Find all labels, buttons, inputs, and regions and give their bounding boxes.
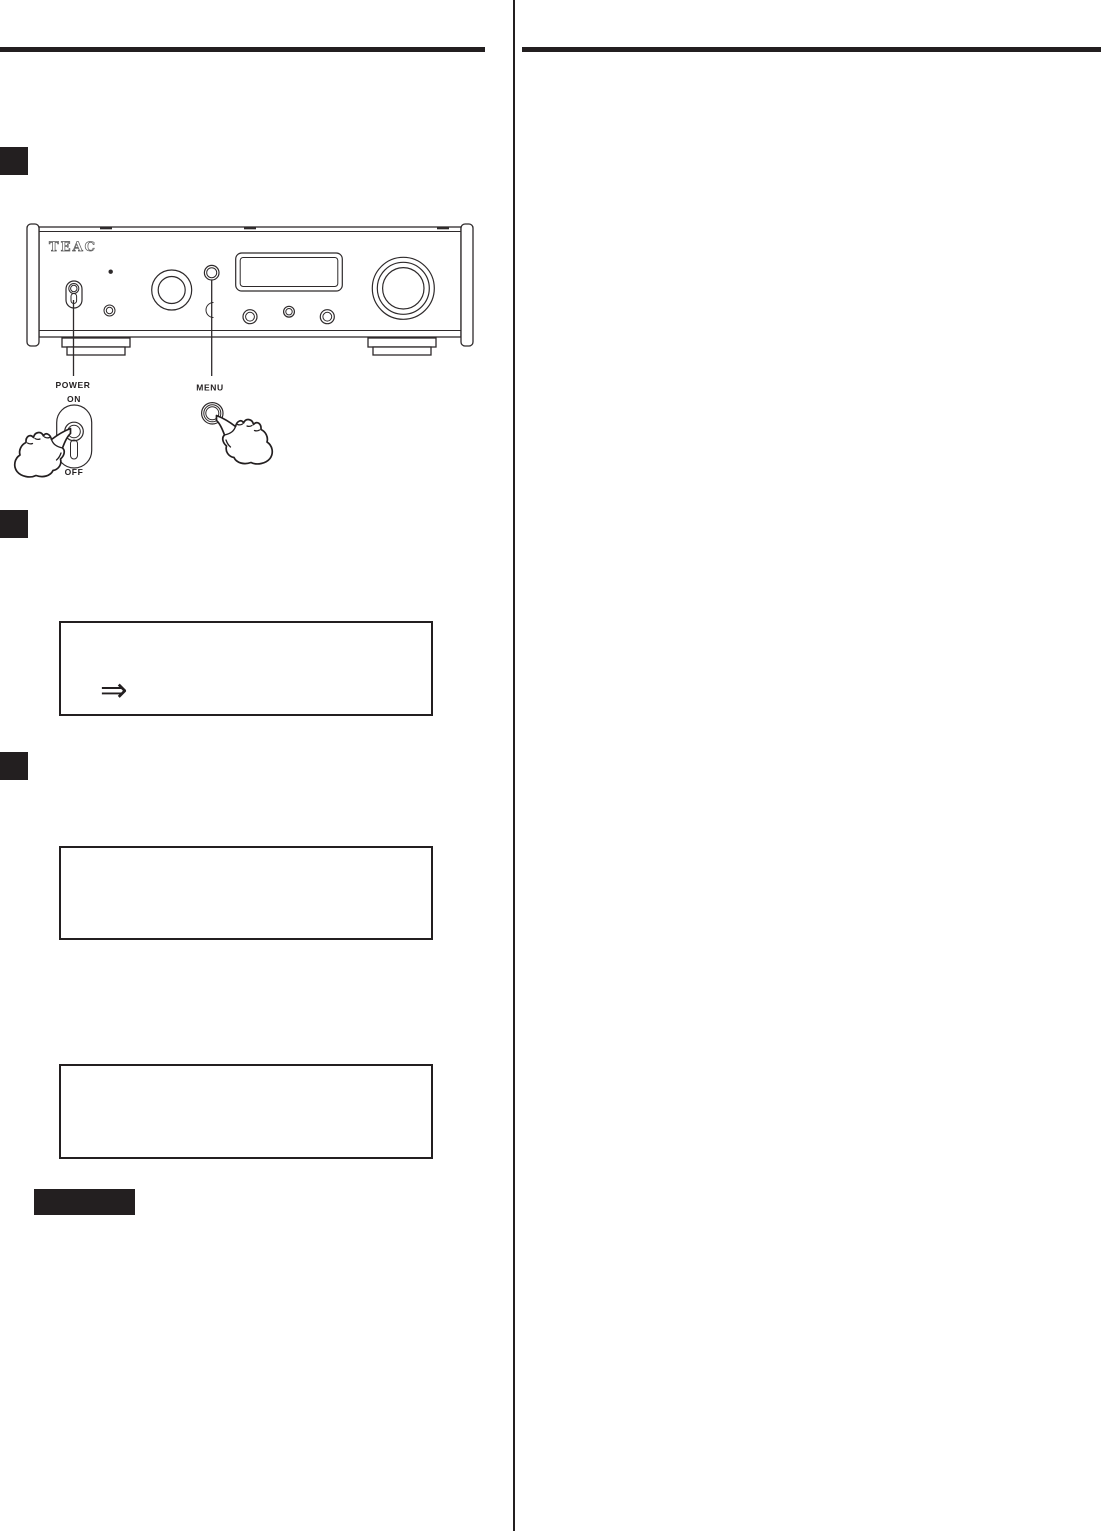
menu-button-illustration: MENU bbox=[196, 383, 272, 464]
step-2-marker bbox=[0, 510, 28, 538]
power-led-indicator bbox=[109, 270, 113, 274]
header-rule-left bbox=[0, 47, 485, 52]
device-feet bbox=[62, 338, 436, 355]
brand-logo: TEAC bbox=[49, 240, 97, 255]
callout-box-2 bbox=[59, 846, 433, 940]
power-off-label: OFF bbox=[65, 467, 84, 477]
pointing-hand-icon bbox=[15, 429, 71, 477]
note-label-bar bbox=[34, 1189, 135, 1215]
callout-box-3 bbox=[59, 1064, 433, 1159]
column-divider bbox=[513, 0, 515, 1531]
power-on-label: ON bbox=[67, 394, 81, 404]
left-end-cap bbox=[27, 224, 39, 346]
callout-box-1: ⇒ bbox=[59, 621, 433, 716]
step-1-marker bbox=[0, 147, 28, 175]
right-end-cap bbox=[461, 224, 473, 346]
power-switch-illustration: POWER ON OFF bbox=[15, 380, 92, 477]
power-label: POWER bbox=[55, 380, 90, 390]
header-rule-right bbox=[522, 47, 1101, 52]
pointing-hand-icon bbox=[217, 416, 273, 464]
device-illustration: TEAC bbox=[0, 215, 500, 490]
step-3-marker bbox=[0, 752, 28, 780]
menu-label: MENU bbox=[196, 383, 223, 393]
manual-page: TEAC bbox=[0, 0, 1101, 1531]
double-arrow-icon: ⇒ bbox=[100, 673, 128, 706]
